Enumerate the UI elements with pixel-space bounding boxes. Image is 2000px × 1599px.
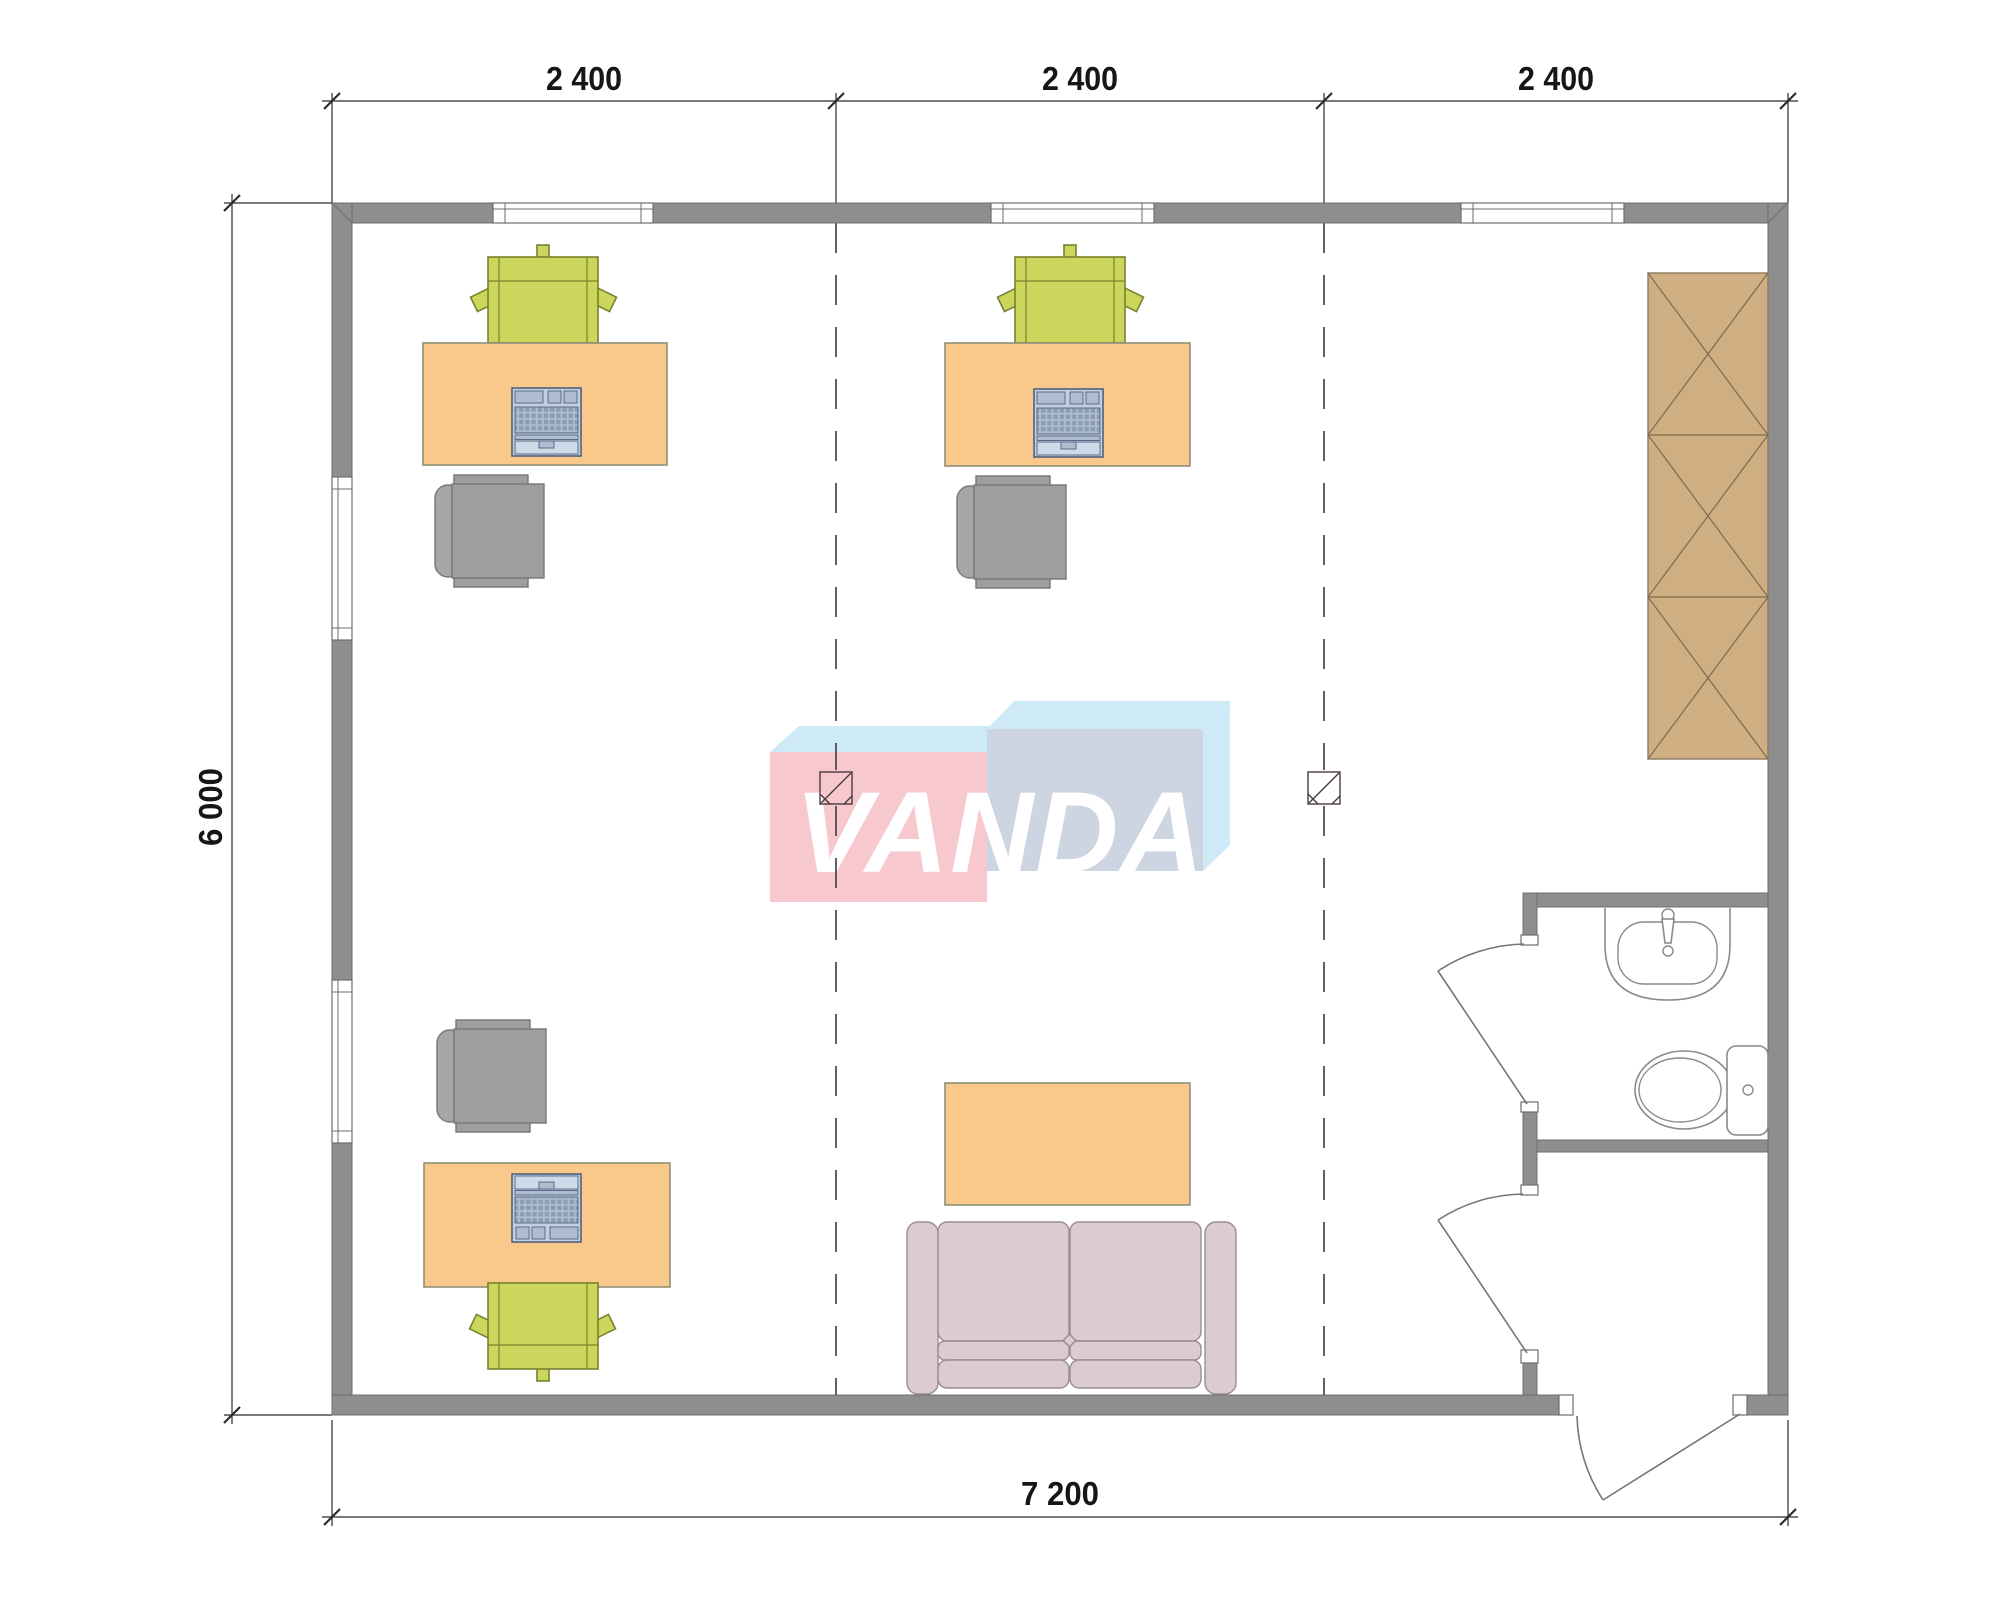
- visitor-chair: [998, 245, 1144, 343]
- office-chair: [435, 475, 544, 587]
- vestibule-door: [1438, 1185, 1538, 1363]
- dim-label-top-2: 2 400: [1042, 60, 1118, 97]
- visitor-chair: [471, 245, 617, 343]
- sink-faucet-spout: [1662, 919, 1674, 943]
- wardrobe: [1648, 273, 1768, 759]
- window-left-2: [332, 980, 352, 1143]
- toilet-bowl: [1635, 1051, 1733, 1129]
- dim-label-top-1: 2 400: [546, 60, 622, 97]
- partition-stub-1: [1523, 893, 1537, 936]
- logo-pink-box-top: [770, 726, 1015, 752]
- toilet: [1635, 1046, 1768, 1135]
- lounge: [907, 1083, 1236, 1394]
- toilet-tank: [1727, 1046, 1768, 1135]
- sink: [1605, 908, 1730, 1000]
- wall-bottom-left-segment: [332, 1395, 1559, 1415]
- sofa-armrest-right: [1205, 1222, 1236, 1394]
- wall-bottom-right-segment: [1747, 1395, 1788, 1415]
- laptop: [512, 1174, 581, 1242]
- logo-blue-box-side: [1203, 701, 1230, 871]
- wall-right: [1768, 203, 1788, 1415]
- wall-left: [332, 203, 352, 1415]
- workstation-1: [423, 245, 667, 587]
- entrance-door: [1559, 1395, 1747, 1500]
- dim-label-top-3: 2 400: [1518, 60, 1594, 97]
- sofa: [907, 1222, 1236, 1394]
- window-top-2: [991, 203, 1154, 223]
- workstation-3: [424, 1020, 670, 1381]
- workstation-2: [945, 245, 1190, 588]
- bathroom-door: [1438, 935, 1538, 1112]
- coffee-table: [945, 1083, 1190, 1205]
- laptop: [1034, 389, 1103, 457]
- sofa-seat: [938, 1341, 1069, 1360]
- column-symbol: [1308, 772, 1340, 804]
- partition-stub-3: [1523, 1363, 1537, 1395]
- dimension-top: 2 400 2 400 2 400: [322, 60, 1798, 203]
- logo-wordmark: VANDA: [795, 769, 1205, 897]
- visitor-chair: [470, 1283, 616, 1381]
- window-top-3: [1461, 203, 1624, 223]
- window-top-1: [493, 203, 653, 223]
- window-left-1: [332, 477, 352, 640]
- floor-plan-canvas: VANDA 2 400 2 400 2 400: [0, 0, 2000, 1599]
- office-chair: [957, 476, 1066, 588]
- dim-label-bottom: 7 200: [1021, 1475, 1099, 1512]
- laptop: [512, 388, 581, 456]
- logo-blue-box-top: [987, 701, 1230, 729]
- sofa-back-cushion: [1070, 1222, 1201, 1341]
- dimension-bottom: 7 200: [322, 1420, 1798, 1526]
- partition-stub-2: [1523, 1111, 1537, 1185]
- sofa-seat-front: [1070, 1360, 1201, 1388]
- office-chair: [437, 1020, 546, 1132]
- sofa-seat-front: [938, 1360, 1069, 1388]
- bathroom-mid-wall: [1523, 1140, 1768, 1152]
- dimension-left: 6 000: [192, 194, 332, 1424]
- bathroom-top-wall: [1523, 893, 1768, 907]
- dim-label-left: 6 000: [192, 768, 229, 846]
- floor-plan-drawing: VANDA 2 400 2 400 2 400: [0, 0, 2000, 1599]
- sofa-back-cushion: [938, 1222, 1069, 1341]
- vanda-logo: VANDA: [770, 701, 1230, 902]
- sofa-armrest-left: [907, 1222, 938, 1394]
- sofa-seat: [1070, 1341, 1201, 1360]
